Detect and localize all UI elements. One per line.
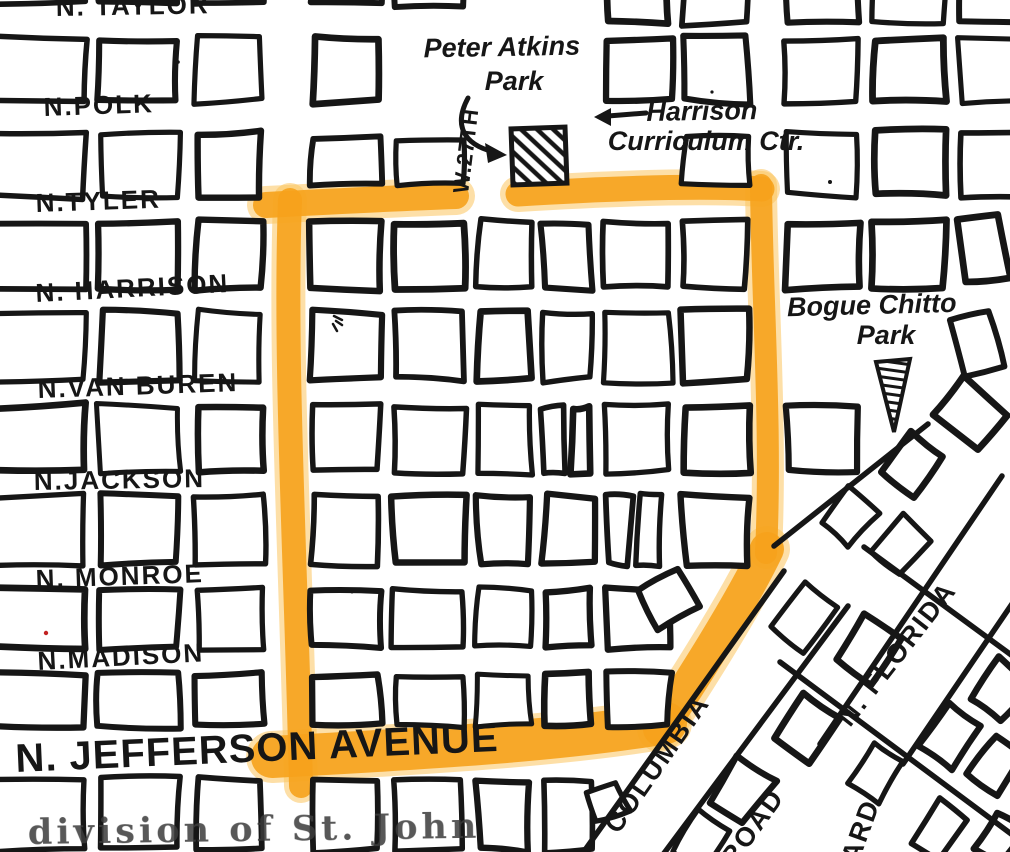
route-west: [288, 200, 301, 786]
city-block: [541, 312, 593, 383]
city-block: [545, 587, 592, 647]
city-block: [569, 406, 590, 474]
landmark-label-bogue-chitto-line1: Bogue Chitto: [787, 288, 957, 322]
city-block: [477, 310, 533, 382]
city-block: [478, 404, 534, 475]
city-block: [684, 405, 751, 473]
city-block: [635, 493, 663, 567]
city-block: [770, 582, 839, 654]
city-block: [786, 0, 859, 23]
city-block: [681, 218, 748, 289]
city-block: [311, 494, 379, 566]
city-block: [391, 495, 467, 563]
arrow-to-harrison-ctr-icon: [608, 113, 646, 116]
landmark-label-peter-atkins-line2: Park: [485, 66, 546, 96]
city-block: [0, 672, 86, 728]
city-block: [100, 493, 178, 565]
city-block: [878, 431, 946, 499]
city-block: [541, 494, 595, 564]
route-top-east: [518, 187, 762, 194]
city-block: [874, 129, 946, 196]
city-block: [602, 221, 668, 287]
caption-division-of-st-john: division of St. John: [28, 806, 481, 852]
landmark-label-bogue-chitto-line2: Park: [857, 320, 918, 350]
city-block: [909, 798, 968, 852]
city-block: [957, 213, 1010, 284]
city-block: [394, 407, 467, 474]
arrow-to-harrison-ctr-head-icon: [594, 108, 611, 126]
city-block: [96, 672, 181, 729]
city-block: [194, 672, 264, 725]
city-block: [197, 130, 261, 198]
street-label-n-taylor: N. TAYLOR: [56, 0, 210, 22]
city-block: [605, 494, 633, 566]
city-block: [310, 310, 382, 381]
city-block: [680, 493, 750, 567]
city-block: [786, 405, 858, 473]
city-block: [312, 674, 382, 725]
city-block: [680, 308, 750, 383]
city-block: [870, 513, 933, 577]
city-block: [310, 136, 383, 185]
city-block: [476, 219, 533, 288]
city-block: [308, 220, 381, 291]
city-block: [193, 494, 266, 565]
city-block: [968, 656, 1010, 723]
city-block: [871, 38, 946, 103]
city-block: [966, 734, 1010, 796]
city-block: [607, 0, 668, 24]
street-label-n-tyler: N.TYLER: [35, 184, 161, 218]
city-block: [193, 35, 262, 105]
city-block: [0, 403, 86, 472]
street-label-n-van-buren: N.VAN BUREN: [37, 367, 239, 404]
city-block: [475, 587, 533, 646]
city-block: [603, 312, 673, 384]
peter-atkins-park-icon: [511, 127, 567, 185]
city-block: [391, 588, 464, 647]
route-east: [761, 185, 768, 553]
city-block: [959, 0, 1010, 22]
city-block: [784, 223, 861, 290]
city-block: [197, 406, 264, 473]
city-block: [393, 309, 465, 381]
landmark-label-harrison-ctr-line1: Harrison: [646, 95, 758, 127]
city-block: [540, 223, 592, 291]
city-block: [475, 781, 529, 852]
map-canvas: N. TAYLOR N.POLK N.TYLER N. HARRISON N.V…: [0, 0, 1010, 852]
city-block: [197, 587, 264, 650]
street-label-n-polk: N.POLK: [43, 88, 154, 122]
city-block: [311, 0, 383, 4]
street-label-n-jackson: N.JACKSON: [34, 463, 206, 496]
city-block: [818, 486, 881, 549]
city-block: [929, 375, 1009, 454]
hand-drawn-map: N. TAYLOR N.POLK N.TYLER N. HARRISON N.V…: [0, 0, 1010, 852]
city-block: [313, 36, 380, 105]
street-label-n-monroe: N. MONROE: [35, 558, 204, 594]
city-block: [603, 403, 670, 476]
red-speckle: [44, 631, 48, 635]
city-block: [681, 0, 750, 26]
city-block: [393, 0, 467, 8]
city-block: [606, 670, 672, 727]
city-block: [871, 0, 948, 24]
city-block: [476, 495, 531, 565]
street-label-ard-fragment: ARD: [835, 795, 885, 852]
city-block: [949, 309, 1006, 378]
city-block: [870, 218, 946, 290]
city-block: [393, 223, 466, 290]
city-block: [682, 35, 751, 105]
city-block: [310, 590, 382, 648]
city-block: [0, 587, 86, 648]
city-block: [958, 37, 1010, 104]
city-block: [0, 493, 84, 567]
city-block: [544, 672, 591, 726]
landmark-label-harrison-ctr-line2: Curriculum Ctr.: [608, 126, 805, 156]
city-block: [312, 403, 381, 471]
city-block: [784, 38, 859, 104]
city-block: [960, 132, 1010, 199]
city-block: [540, 405, 565, 474]
street-label-w-27th: W.27TH: [448, 107, 483, 195]
city-block: [606, 38, 673, 101]
bogue-chitto-park-icon: [876, 359, 910, 432]
landmark-label-peter-atkins-line1: Peter Atkins: [423, 31, 580, 64]
arrow-to-peter-atkins-head-icon: [485, 143, 507, 163]
